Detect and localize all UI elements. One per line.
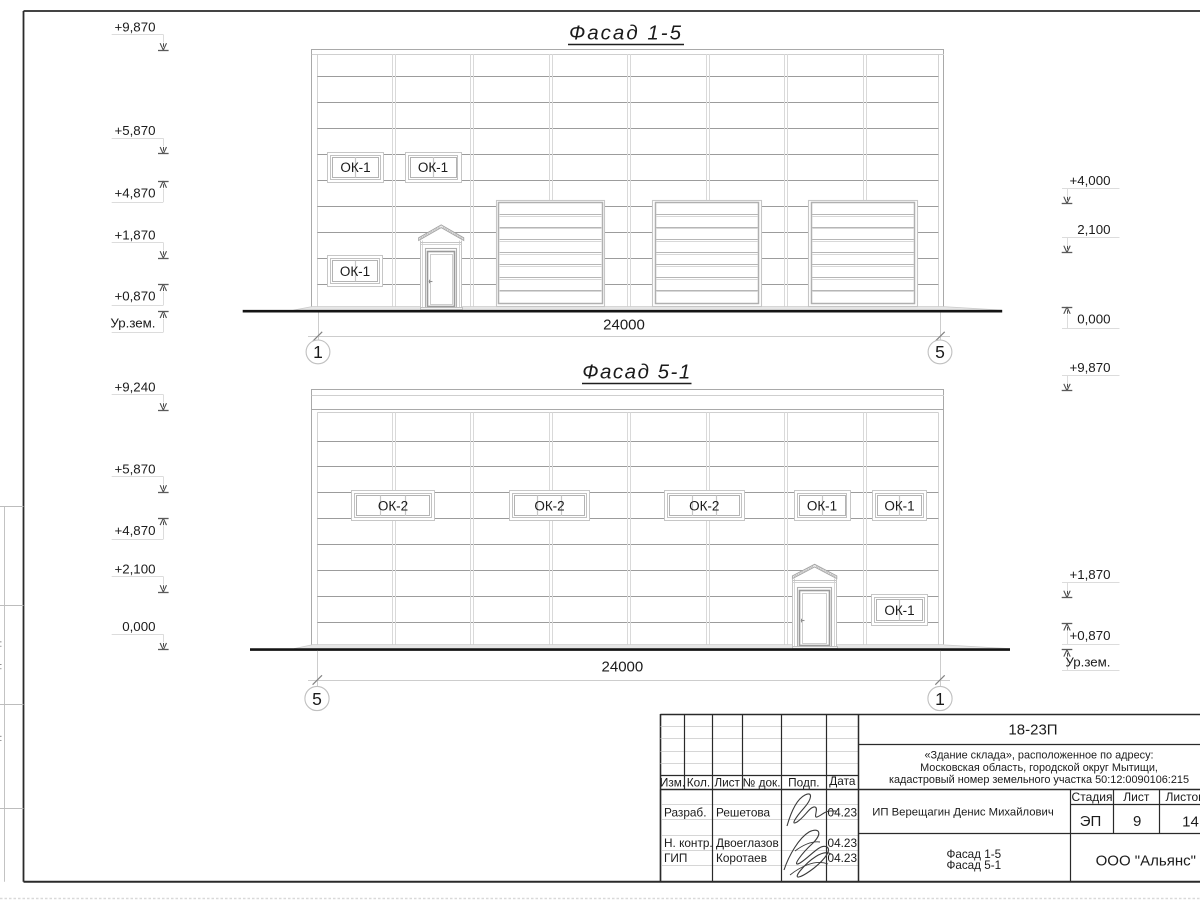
svg-text:+9,870: +9,870 xyxy=(114,19,155,34)
svg-text:+1,870: +1,870 xyxy=(114,227,155,242)
svg-text:Подп.: Подп. xyxy=(788,776,819,790)
svg-text:ОК-2: ОК-2 xyxy=(534,499,564,514)
svg-text:Изм.: Изм. xyxy=(660,776,685,790)
svg-text:Московская область, городской: Московская область, городской округ Мыти… xyxy=(920,762,1158,774)
svg-text:Подп. и дата: Подп. и дата xyxy=(0,627,1,680)
svg-text:ОК-1: ОК-1 xyxy=(418,160,448,175)
svg-text:0,000: 0,000 xyxy=(1077,312,1110,327)
svg-text:+5,870: +5,870 xyxy=(114,123,155,138)
svg-text:Листов: Листов xyxy=(1166,790,1200,804)
svg-text:ООО "Альянс": ООО "Альянс" xyxy=(1096,853,1196,870)
svg-text:ОК-1: ОК-1 xyxy=(807,499,837,514)
svg-text:Ур.зем.: Ур.зем. xyxy=(1065,654,1110,669)
svg-text:Стадия: Стадия xyxy=(1072,790,1113,804)
svg-text:+0,870: +0,870 xyxy=(114,289,155,304)
svg-text:2,100: 2,100 xyxy=(1077,222,1110,237)
svg-text:+2,100: +2,100 xyxy=(114,561,155,576)
svg-text:9: 9 xyxy=(1133,813,1141,830)
svg-text:№ док.: № док. xyxy=(743,776,781,790)
svg-text:14: 14 xyxy=(1182,814,1199,831)
svg-text:+4,870: +4,870 xyxy=(114,523,155,538)
svg-text:Лист: Лист xyxy=(1123,790,1150,804)
svg-text:+1,870: +1,870 xyxy=(1069,567,1110,582)
svg-text:+4,000: +4,000 xyxy=(1069,173,1110,188)
svg-text:ГИП: ГИП xyxy=(664,851,687,865)
svg-text:04.23: 04.23 xyxy=(828,805,858,819)
svg-text:ЭП: ЭП xyxy=(1080,813,1102,830)
svg-text:+9,870: +9,870 xyxy=(1069,360,1110,375)
svg-text:Кол.: Кол. xyxy=(687,776,710,790)
svg-text:Н. контр.: Н. контр. xyxy=(664,836,713,850)
svg-text:04.23: 04.23 xyxy=(828,851,858,865)
svg-text:5: 5 xyxy=(312,689,322,709)
svg-text:24000: 24000 xyxy=(602,659,644,676)
svg-text:«Здание склада», расположенное: «Здание склада», расположенное по адресу… xyxy=(924,750,1153,762)
svg-text:1: 1 xyxy=(313,342,323,362)
svg-text:+5,870: +5,870 xyxy=(114,461,155,476)
svg-text:Фасад 1-5: Фасад 1-5 xyxy=(569,22,683,45)
svg-text:Дата: Дата xyxy=(829,774,856,788)
svg-text:ОК-1: ОК-1 xyxy=(884,603,914,618)
svg-text:ОК-2: ОК-2 xyxy=(689,499,719,514)
svg-text:ОК-1: ОК-1 xyxy=(884,499,914,514)
svg-text:04.23: 04.23 xyxy=(828,836,858,850)
svg-text:+9,240: +9,240 xyxy=(114,379,155,394)
svg-text:1: 1 xyxy=(935,689,945,709)
svg-text:ОК-2: ОК-2 xyxy=(378,499,408,514)
svg-text:Коротаев: Коротаев xyxy=(716,851,767,865)
svg-text:кадастровый номер земельного у: кадастровый номер земельного участка 50:… xyxy=(889,774,1189,786)
svg-text:ОК-1: ОК-1 xyxy=(340,160,370,175)
svg-text:Фасад 5-1: Фасад 5-1 xyxy=(582,361,692,384)
svg-text:Разраб.: Разраб. xyxy=(664,805,706,819)
svg-text:Решетова: Решетова xyxy=(716,805,771,819)
svg-text:ИП Верещагин Денис Михайлович: ИП Верещагин Денис Михайлович xyxy=(872,807,1054,819)
svg-text:Ур.зем.: Ур.зем. xyxy=(110,316,155,331)
svg-text:Фасад 5-1: Фасад 5-1 xyxy=(946,859,1001,872)
svg-text:Лист: Лист xyxy=(714,776,740,790)
svg-text:Двоеглазов: Двоеглазов xyxy=(716,836,779,850)
svg-text:0,000: 0,000 xyxy=(122,619,155,634)
svg-text:18-23П: 18-23П xyxy=(1008,721,1057,738)
svg-text:+0,870: +0,870 xyxy=(1069,628,1110,643)
svg-text:ОК-1: ОК-1 xyxy=(340,264,370,279)
svg-text:5: 5 xyxy=(935,342,945,362)
svg-text:Инв. № подл.: Инв. № подл. xyxy=(0,728,1,784)
svg-text:+4,870: +4,870 xyxy=(114,186,155,201)
svg-text:24000: 24000 xyxy=(603,317,645,334)
